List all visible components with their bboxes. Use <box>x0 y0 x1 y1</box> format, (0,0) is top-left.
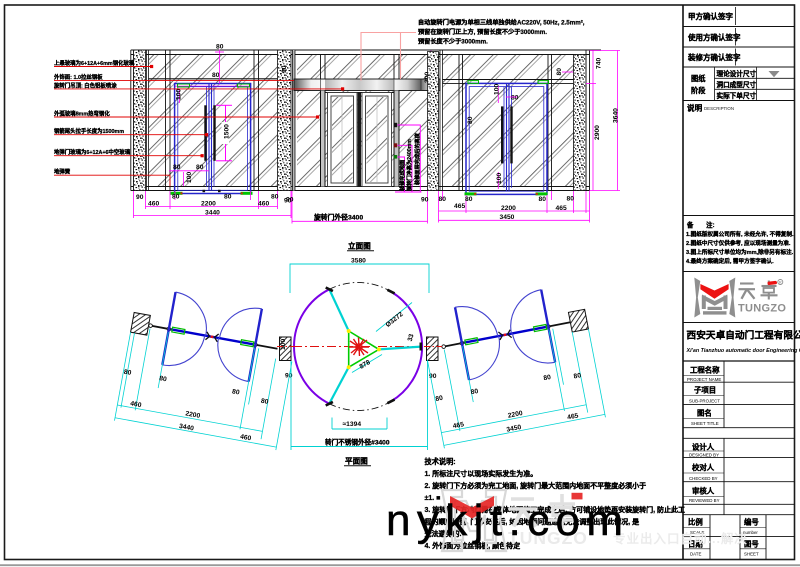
svg-text:90: 90 <box>136 194 144 201</box>
svg-text:Xi'an Tianzhuo automatic door: Xi'an Tianzhuo automatic door Engineerin… <box>686 348 800 354</box>
svg-text:装修面层完成后的高度: 装修面层完成后的高度 <box>413 132 421 185</box>
svg-text:100: 100 <box>186 172 193 183</box>
svg-text:DESCRIPTION: DESCRIPTION <box>704 106 734 111</box>
svg-text:审核人: 审核人 <box>692 487 715 496</box>
svg-text:钢箭尾头拉手长度为1500mm: 钢箭尾头拉手长度为1500mm <box>54 127 124 135</box>
svg-text:3450: 3450 <box>500 214 515 221</box>
svg-text:SUB-PROJECT: SUB-PROJECT <box>689 399 720 404</box>
svg-text:80: 80 <box>172 194 180 201</box>
svg-text:80: 80 <box>465 196 473 203</box>
svg-text:80: 80 <box>159 375 168 383</box>
svg-text:校对人: 校对人 <box>692 463 715 472</box>
svg-text:编号: 编号 <box>744 518 759 527</box>
svg-text:专业出入口自动...解决: 专业出入口自动...解决 <box>613 531 748 546</box>
svg-text:转门不锈钢外径#3400: 转门不锈钢外径#3400 <box>325 438 390 447</box>
svg-text:技术说明:: 技术说明: <box>425 457 456 466</box>
svg-text:80: 80 <box>173 164 181 171</box>
svg-text:2. 旋转门下方必须为完工地面, 旋转门最大范围内地面不平整: 2. 旋转门下方必须为完工地面, 旋转门最大范围内地面不平整度必须小于 <box>425 481 647 490</box>
svg-text:图名: 图名 <box>697 409 712 418</box>
svg-text:预留在旋转门正上方, 预留长度不少于3000mm.: 预留在旋转门正上方, 预留长度不少于3000mm. <box>418 28 547 36</box>
svg-text:80: 80 <box>511 95 519 102</box>
svg-text:R: R <box>779 280 782 285</box>
svg-text:100: 100 <box>176 89 183 100</box>
svg-text:DESIGNED BY: DESIGNED BY <box>689 452 719 457</box>
svg-text:SHEET: SHEET <box>744 552 759 557</box>
svg-text:3440: 3440 <box>205 210 220 217</box>
svg-text:装修方确认签字: 装修方确认签字 <box>687 52 741 62</box>
svg-text:nykjt.com: nykjt.com <box>386 496 629 545</box>
svg-text:CHECKED BY: CHECKED BY <box>689 476 718 481</box>
svg-text:平面图: 平面图 <box>345 457 368 466</box>
svg-text:100: 100 <box>494 84 501 95</box>
svg-text:90: 90 <box>281 65 288 73</box>
svg-text:DATE: DATE <box>690 552 701 557</box>
svg-text:洞口成型尺寸: 洞口成型尺寸 <box>717 80 757 89</box>
svg-text:80: 80 <box>216 44 224 51</box>
svg-text:80: 80 <box>567 196 575 203</box>
svg-text:80: 80 <box>539 196 547 203</box>
svg-text:2.图纸中尺寸仅供参考, 应以现场测量为准.: 2.图纸中尺寸仅供参考, 应以现场测量为准. <box>686 239 791 247</box>
svg-text:80: 80 <box>123 369 132 377</box>
svg-text:460: 460 <box>148 201 159 208</box>
svg-text:理论设计尺寸: 理论设计尺寸 <box>717 69 757 78</box>
svg-text:PROJECT NAME: PROJECT NAME <box>687 377 721 382</box>
svg-text:甲方确认签字: 甲方确认签字 <box>688 11 733 21</box>
svg-text:旋转门吊顶: 白色铝板喷涂: 旋转门吊顶: 白色铝板喷涂 <box>53 81 117 89</box>
svg-text:≈1394: ≈1394 <box>343 421 362 428</box>
svg-text:使用方确认签字: 使用方确认签字 <box>687 32 741 42</box>
svg-text:465: 465 <box>454 203 465 210</box>
svg-text:上悬玻璃为6+12A+6mm钢化玻璃: 上悬玻璃为6+12A+6mm钢化玻璃 <box>54 59 135 67</box>
svg-text:80: 80 <box>196 164 204 171</box>
svg-text:80: 80 <box>224 194 232 201</box>
svg-text:1. 所标注尺寸以现场实际发生为准。: 1. 所标注尺寸以现场实际发生为准。 <box>425 469 538 478</box>
svg-text:3.图上所标尺寸单位均为mm,除非另有标注.: 3.图上所标尺寸单位均为mm,除非另有标注. <box>686 248 794 256</box>
svg-text:旋转门外径3400: 旋转门外径3400 <box>313 212 363 221</box>
svg-text:80: 80 <box>467 116 474 124</box>
svg-text:2200: 2200 <box>501 205 516 212</box>
svg-text:子项目: 子项目 <box>694 386 716 395</box>
svg-text:REVIEWED BY: REVIEWED BY <box>689 498 720 503</box>
svg-text:图纸: 图纸 <box>691 74 706 83</box>
svg-text:自动旋转门电源为单相三线单独供给AC220V, 50Hz,: 自动旋转门电源为单相三线单独供给AC220V, 50Hz, 2.5mm², <box>418 19 585 27</box>
svg-text:预留长度不少于3000mm.: 预留长度不少于3000mm. <box>418 38 488 46</box>
svg-text:设计人: 设计人 <box>692 443 715 452</box>
svg-text:465: 465 <box>556 205 567 212</box>
svg-text:装修完成地面: 装修完成地面 <box>398 160 406 191</box>
svg-text:80: 80 <box>260 398 269 406</box>
svg-text:100: 100 <box>496 173 503 184</box>
svg-text:地弹簧: 地弹簧 <box>54 168 71 176</box>
svg-text:地弹门玻璃为6+12A+6中空玻璃: 地弹门玻璃为6+12A+6中空玻璃 <box>54 148 131 156</box>
svg-text:外弧玻璃8mm热弯钢化: 外弧玻璃8mm热弯钢化 <box>54 109 110 117</box>
svg-text:旋转门净高为2400mm: 旋转门净高为2400mm <box>405 139 413 192</box>
svg-text:TUNGZO: TUNGZO <box>738 303 786 315</box>
svg-text:100: 100 <box>280 339 287 350</box>
svg-text:SHEET TITLE: SHEET TITLE <box>691 421 719 426</box>
svg-text:立面图: 立面图 <box>348 241 371 251</box>
svg-text:80: 80 <box>271 194 279 201</box>
svg-text:80: 80 <box>231 388 240 396</box>
svg-text:实际下单尺寸: 实际下单尺寸 <box>717 91 757 100</box>
svg-text:比例: 比例 <box>688 518 703 527</box>
svg-text:外饰面: 1.0拉丝钢板: 外饰面: 1.0拉丝钢板 <box>54 73 103 81</box>
svg-text:460: 460 <box>258 201 269 208</box>
svg-text:西安天卓自动门工程有限公司: 西安天卓自动门工程有限公司 <box>687 330 800 342</box>
svg-text:4.最终方案确定后, 需甲方签字确认.: 4.最终方案确定后, 需甲方签字确认. <box>686 257 774 265</box>
svg-text:80: 80 <box>212 72 220 79</box>
svg-text:备 注:: 备 注: <box>686 220 715 229</box>
svg-text:740: 740 <box>596 58 603 69</box>
svg-text:2200: 2200 <box>201 201 216 208</box>
svg-text:3640: 3640 <box>613 108 620 123</box>
svg-text:1.图纸版权属公司所有, 未经允许, 不得复制.: 1.图纸版权属公司所有, 未经允许, 不得复制. <box>686 230 794 238</box>
svg-text:1500: 1500 <box>224 124 231 139</box>
svg-text:2900: 2900 <box>594 125 601 140</box>
svg-text:工程名称: 工程名称 <box>690 366 720 375</box>
svg-text:90: 90 <box>286 197 294 204</box>
svg-text:90: 90 <box>421 197 429 204</box>
svg-text:说明: 说明 <box>687 103 703 113</box>
svg-text:80: 80 <box>439 196 447 203</box>
svg-text:阶段: 阶段 <box>691 86 706 95</box>
svg-text:3580: 3580 <box>351 258 366 265</box>
svg-text:80: 80 <box>556 68 563 76</box>
